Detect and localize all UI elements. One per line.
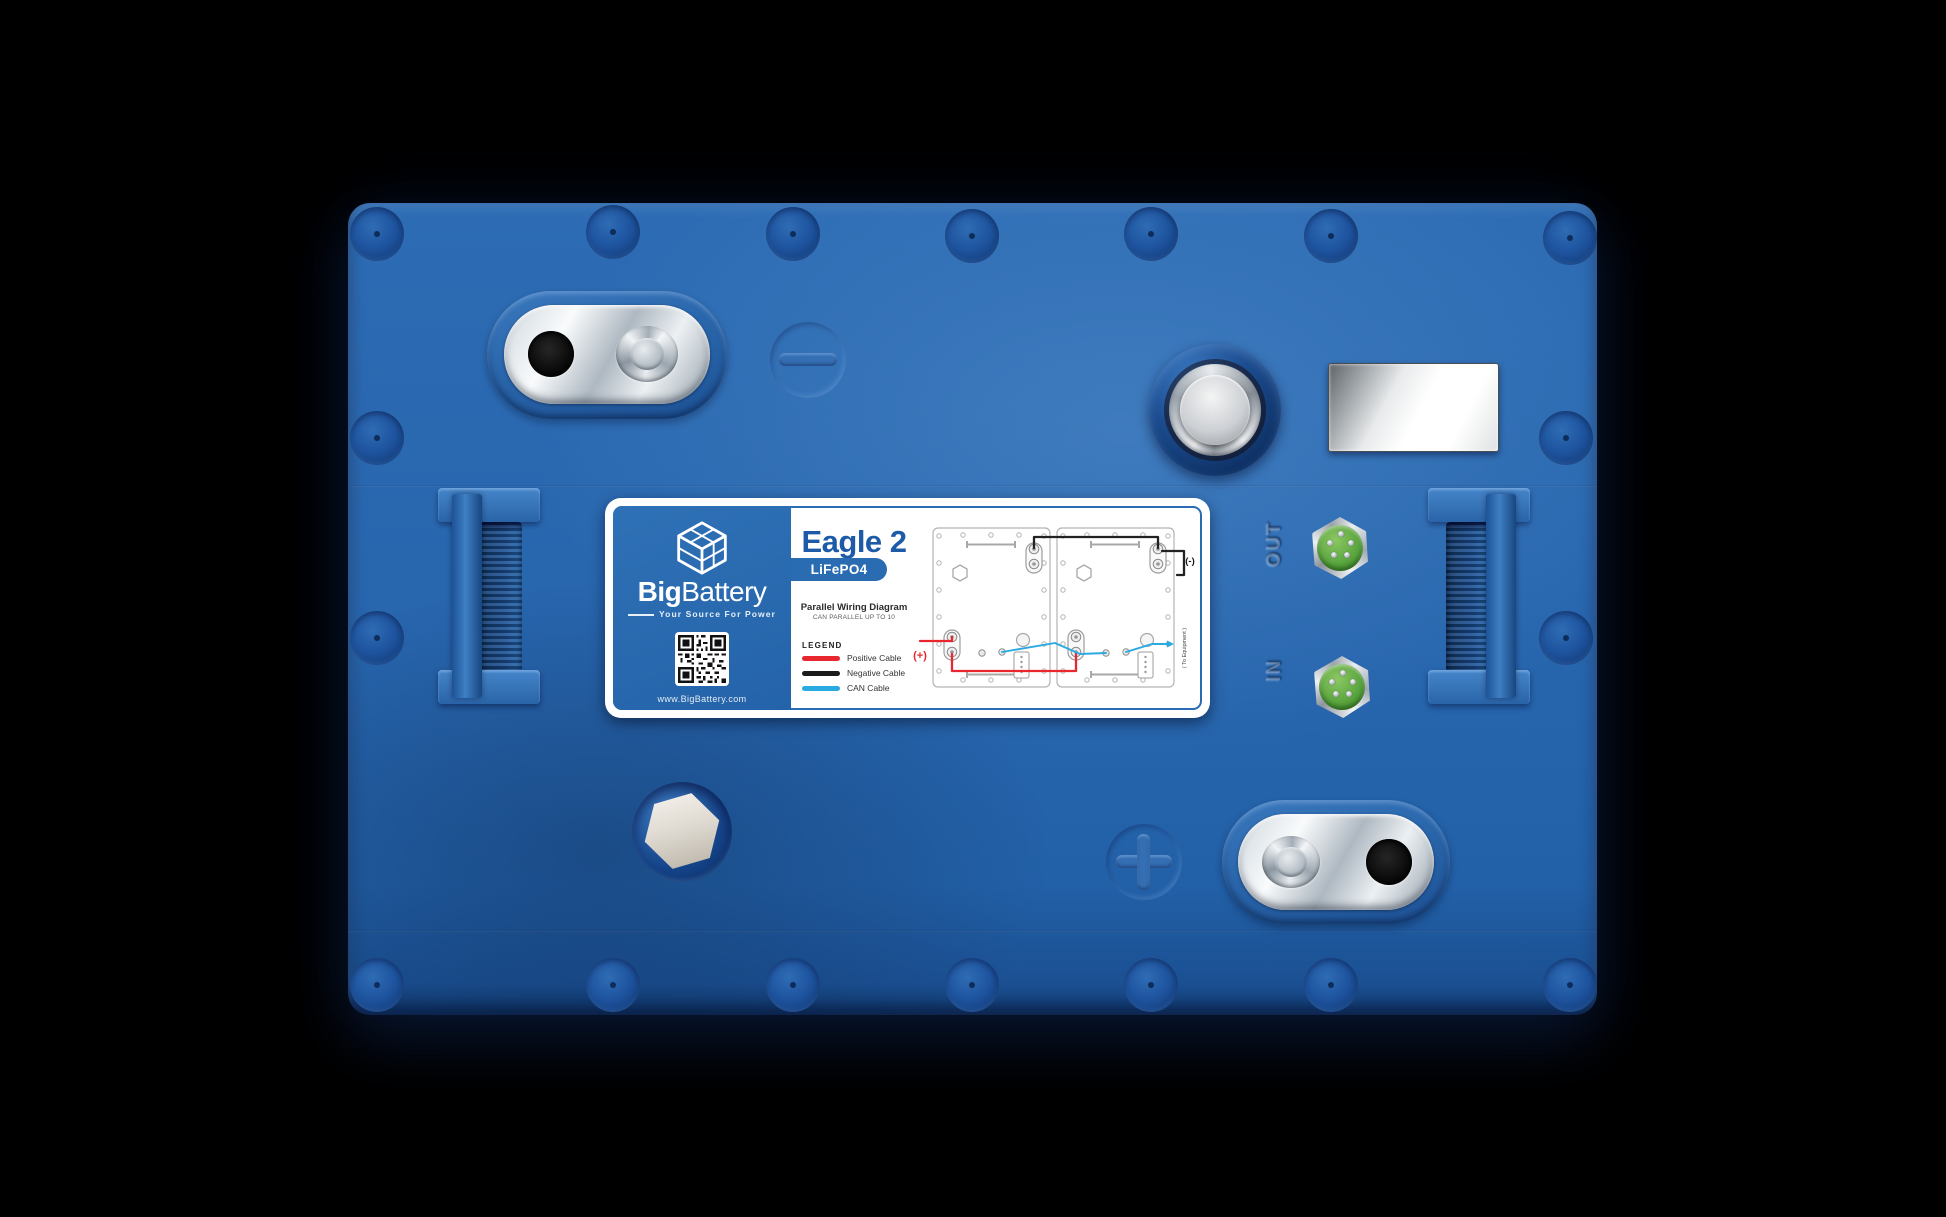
dome-bump xyxy=(945,958,999,1012)
plus-mark-icon xyxy=(1106,824,1182,900)
product-photo: OUT IN xyxy=(0,0,1946,1217)
product-label: BigBattery Your Source For Power xyxy=(605,498,1210,718)
connector-pin xyxy=(1350,679,1356,685)
terminal-hole xyxy=(1366,839,1412,885)
qr-code-icon xyxy=(675,632,729,686)
legend-item: Positive Cable xyxy=(802,653,901,663)
dome-bump xyxy=(350,611,404,665)
terminal-bolt xyxy=(1262,836,1320,888)
legend-swatch-negative xyxy=(802,671,840,676)
terminal-boss-bottom-right xyxy=(1222,800,1450,924)
hex-plug-well xyxy=(632,782,732,882)
dome-bump xyxy=(1124,207,1178,261)
legend-label: Positive Cable xyxy=(847,653,901,663)
connector-pin xyxy=(1348,540,1354,546)
battery-case-top-view: OUT IN xyxy=(348,203,1597,1015)
connector-pin xyxy=(1344,552,1350,558)
dome-bump xyxy=(350,207,404,261)
dome-bump xyxy=(586,205,640,259)
dome-bump xyxy=(1304,958,1358,1012)
brand-tagline: Your Source For Power xyxy=(613,609,791,619)
mold-line xyxy=(348,485,1597,487)
positive-terminal-label: (+) xyxy=(913,650,927,662)
connector-pin xyxy=(1329,679,1335,685)
legend-title: LEGEND xyxy=(802,641,843,650)
in-connector xyxy=(1311,656,1373,718)
power-button-cap xyxy=(1180,375,1250,445)
out-port-label: OUT xyxy=(1264,509,1286,579)
connector-face xyxy=(1319,664,1365,710)
legend-label: CAN Cable xyxy=(847,683,890,693)
connector-pin xyxy=(1327,540,1333,546)
legend-label: Negative Cable xyxy=(847,668,905,678)
legend-item: CAN Cable xyxy=(802,683,890,693)
legend-swatch-can xyxy=(802,686,840,691)
left-handle xyxy=(438,488,540,704)
brand-logo-icon xyxy=(674,520,730,576)
hex-plug xyxy=(635,784,730,879)
dome-bump xyxy=(1539,411,1593,465)
terminal-hole xyxy=(528,331,574,377)
connector-pin xyxy=(1333,691,1339,697)
power-button xyxy=(1149,344,1281,476)
terminal-bolt xyxy=(616,326,678,382)
legend-swatch-positive xyxy=(802,656,840,661)
diagram-subtitle: CAN PARALLEL UP TO 10 xyxy=(791,614,917,621)
dome-bump xyxy=(1543,958,1597,1012)
minus-mark-icon xyxy=(770,322,846,398)
chemistry-badge: LiFePO4 xyxy=(791,558,887,581)
dome-bump xyxy=(350,411,404,465)
out-connector xyxy=(1309,517,1371,579)
dome-bump xyxy=(766,958,820,1012)
to-equipment-label: ( To Equipment ) xyxy=(1182,628,1188,668)
dome-bump xyxy=(1304,209,1358,263)
mold-line xyxy=(348,930,1597,932)
dome-bump xyxy=(766,207,820,261)
negative-terminal-label: (-) xyxy=(1185,556,1195,567)
dome-bump xyxy=(350,958,404,1012)
right-handle xyxy=(1428,488,1530,704)
brand-panel: BigBattery Your Source For Power xyxy=(613,506,791,710)
connector-pin xyxy=(1338,531,1344,537)
connector-pin xyxy=(1331,552,1337,558)
product-name: Eagle 2 xyxy=(793,524,915,560)
in-port-label: IN xyxy=(1264,635,1286,705)
dome-bump xyxy=(1124,958,1178,1012)
website-url: www.BigBattery.com xyxy=(613,694,791,704)
dome-bump xyxy=(1539,611,1593,665)
dome-bump xyxy=(1543,211,1597,265)
connector-pin xyxy=(1340,670,1346,676)
wiring-diagram: (+) (-) ( To Equipment ) xyxy=(905,525,1195,690)
dome-bump xyxy=(586,958,640,1012)
connector-pin xyxy=(1346,691,1352,697)
terminal-plate xyxy=(504,305,710,404)
terminal-plate xyxy=(1238,814,1434,910)
diagram-title: Parallel Wiring Diagram xyxy=(791,602,917,613)
connector-face xyxy=(1317,525,1363,571)
terminal-boss-top-left xyxy=(487,291,727,419)
chrome-nameplate xyxy=(1328,363,1499,452)
brand-name: BigBattery xyxy=(613,576,791,608)
legend-item: Negative Cable xyxy=(802,668,905,678)
dome-bump xyxy=(945,209,999,263)
